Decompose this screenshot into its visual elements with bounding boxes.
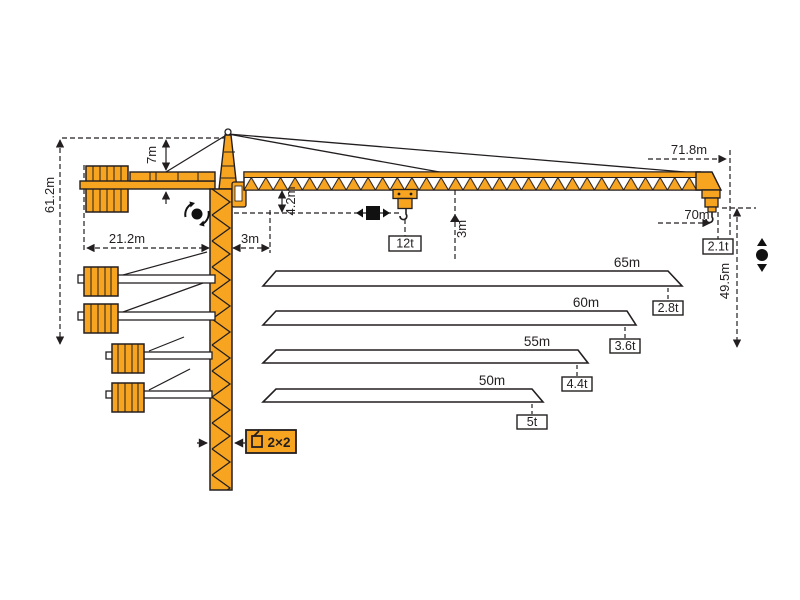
dim-max-radius-text: 70m (684, 207, 709, 222)
dim-jib-length-text: 71.8m (671, 142, 707, 157)
jib-option-65m-load: 2.8t (658, 301, 679, 315)
mast (210, 189, 232, 490)
trolley-travel-icon (356, 206, 390, 220)
dim-hook-height: 49.5m (717, 209, 737, 347)
counterweight-option-3 (106, 337, 212, 373)
jib-option-65m-length: 65m (614, 255, 640, 270)
max-load-label: 12t (389, 236, 421, 251)
max-load-text: 12t (396, 237, 414, 251)
counterweight-option-4 (106, 369, 212, 412)
jib-option-50m-load: 5t (527, 415, 538, 429)
jib-option-60m-length: 60m (573, 295, 599, 310)
jib-option-55m-load: 4.4t (567, 377, 588, 391)
dim-hook-clearance: 3m (450, 214, 469, 238)
jib-option-60m-load: 3.6t (615, 339, 636, 353)
counter-jib (80, 166, 215, 212)
tip-load-label: 2.1t (703, 239, 733, 254)
jib-option-55m: 55m 4.4t (263, 334, 592, 391)
dim-hook-height-text: 49.5m (717, 263, 732, 299)
dim-total-height: 61.2m (42, 140, 60, 344)
dim-counterjib-radius: 21.2m (87, 231, 209, 248)
hoist-icon (756, 238, 768, 272)
dim-min-radius: 3m (233, 231, 269, 248)
mast-section-text: 2×2 (268, 435, 291, 450)
dim-max-radius: 70m (658, 207, 710, 223)
crane-load-diagram: 61.2m 7m 21.2m 3m 4.2m 3m 71.8m 70m 49.5… (0, 0, 800, 600)
dim-counterjib-radius-text: 21.2m (109, 231, 145, 246)
dim-jib-length: 71.8m (648, 142, 726, 159)
jib-tip (696, 172, 721, 190)
jib-option-50m-length: 50m (479, 373, 505, 388)
pendant-lines (166, 134, 697, 173)
counterjib-beam (130, 172, 215, 181)
dim-jib-underside-text: 4.2m (283, 187, 298, 216)
main-jib (244, 172, 721, 190)
counterjib-rail (80, 181, 215, 189)
tip-load-text: 2.1t (708, 240, 729, 254)
counterweight-option-1 (78, 252, 215, 296)
dim-total-height-text: 61.2m (42, 177, 57, 213)
apex-pin (225, 129, 231, 135)
dim-jib-underside: 4.2m (282, 187, 298, 216)
jib-option-65m: 65m 2.8t (263, 255, 683, 315)
jib-option-50m: 50m 5t (263, 373, 547, 429)
dim-apex-height-text: 7m (144, 146, 159, 164)
jib-option-60m: 60m 3.6t (263, 295, 640, 353)
diagram-svg: 61.2m 7m 21.2m 3m 4.2m 3m 71.8m 70m 49.5… (0, 0, 800, 600)
dim-hook-clearance-text: 3m (454, 220, 469, 238)
trolley (393, 190, 417, 220)
jib-option-55m-length: 55m (524, 334, 550, 349)
dim-min-radius-text: 3m (241, 231, 259, 246)
slewing-icon (185, 202, 209, 227)
hook-icon (400, 208, 407, 220)
